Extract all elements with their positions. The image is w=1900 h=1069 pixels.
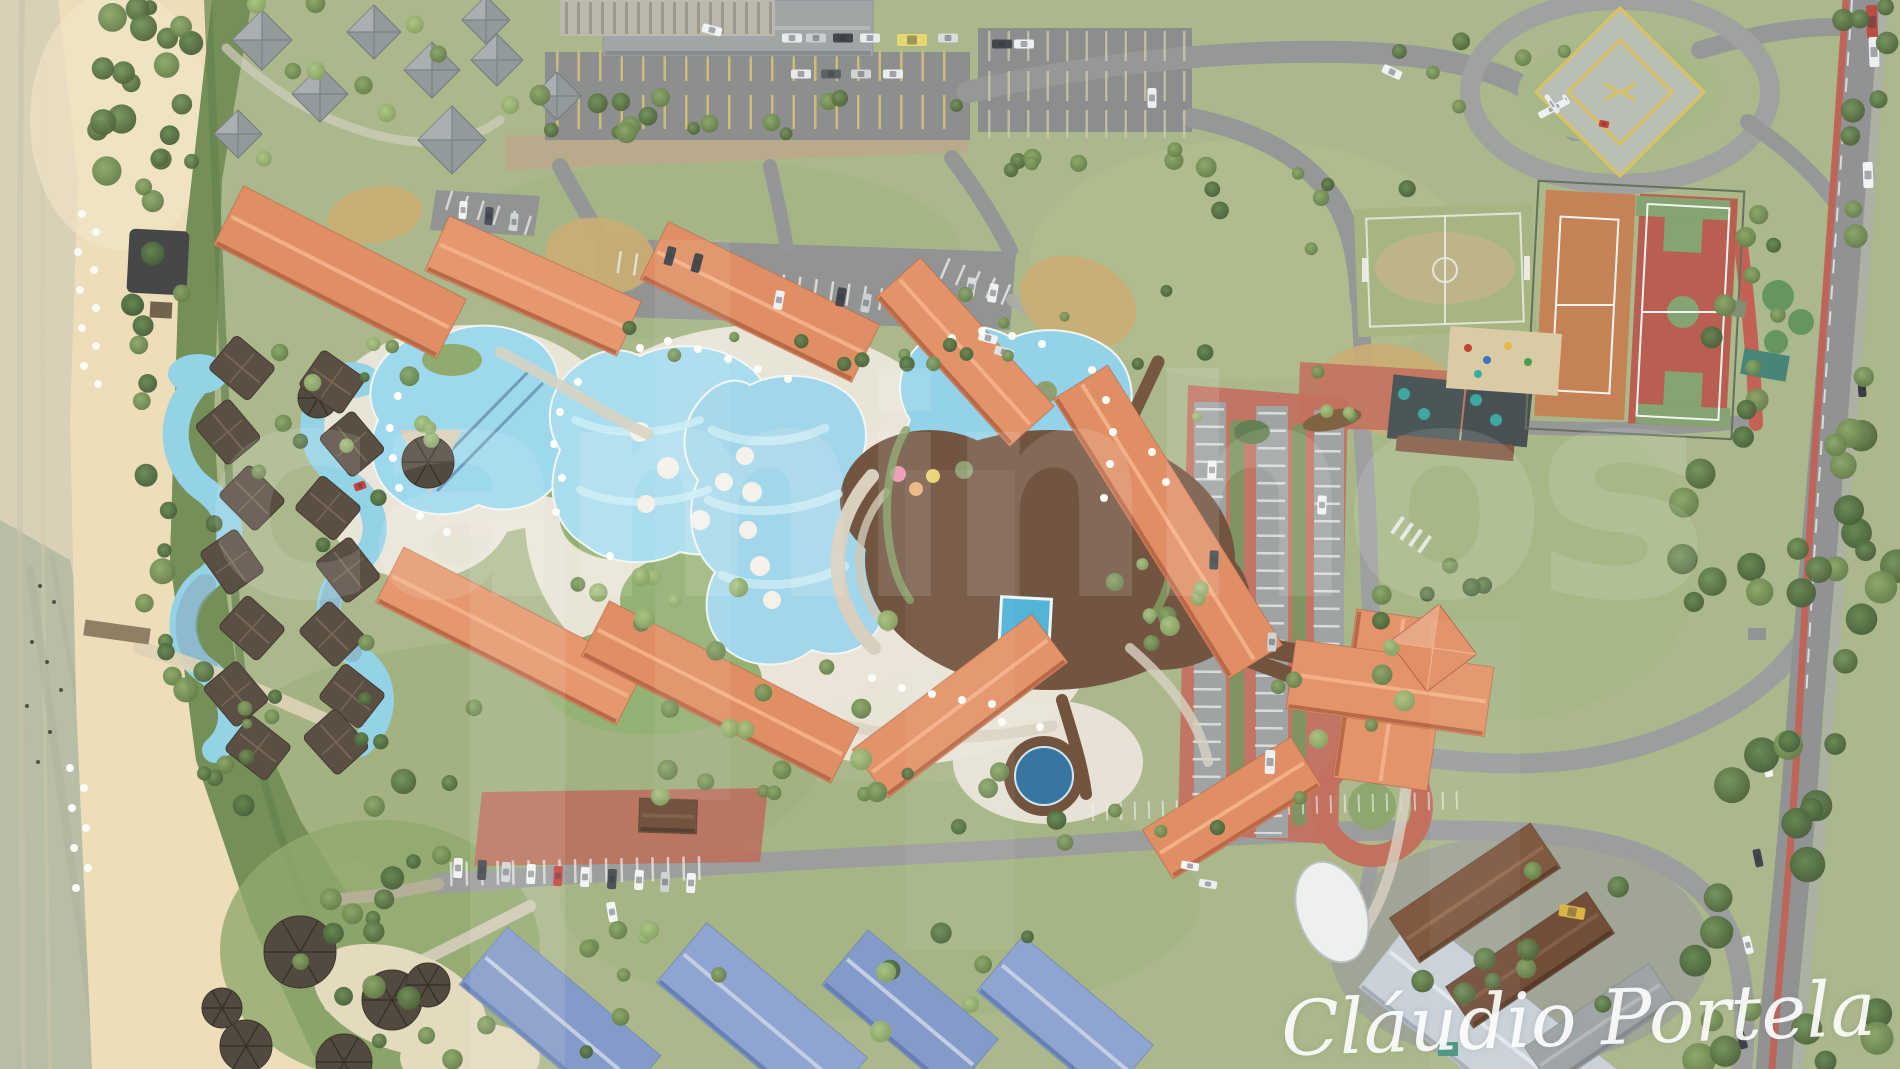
aerial-photo: caminhos Cláudio Portela <box>0 0 1900 1069</box>
warm-cast <box>0 0 1900 1069</box>
atmosphere <box>0 0 1900 1069</box>
aerial-photo-canvas <box>0 0 1900 1069</box>
